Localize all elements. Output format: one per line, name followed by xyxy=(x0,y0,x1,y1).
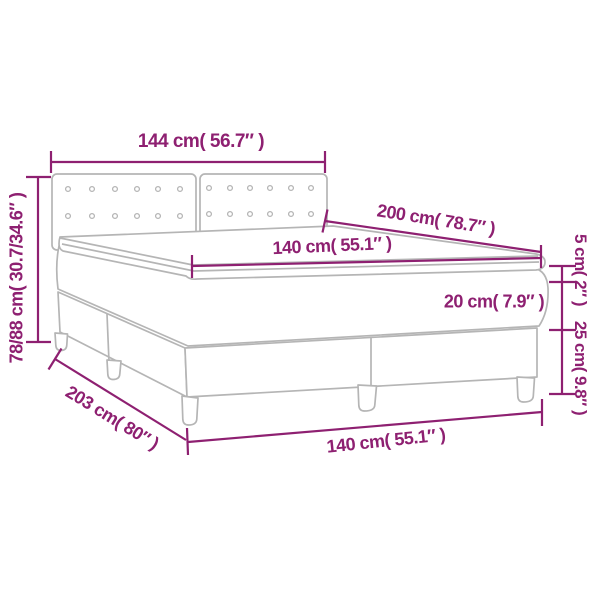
dim-height-range-line xyxy=(26,177,51,342)
bed-leg xyxy=(107,360,121,380)
dim-label-mattress-height: 20 cm( 7.9″ ) xyxy=(444,292,544,313)
dim-label-base-height: 25 cm( 9.8″ ) xyxy=(570,321,590,415)
dim-headboard-width-line xyxy=(51,151,325,173)
dim-label-topper-height: 5 cm( 2″ ) xyxy=(570,234,590,306)
bed-leg xyxy=(517,377,535,402)
bed-leg xyxy=(182,396,198,425)
product-dimension-diagram: 144 cm( 56.7″ ) 78/88 cm( 30.7/34.6″ ) 2… xyxy=(0,0,600,600)
dim-label-headboard-width: 144 cm( 56.7″ ) xyxy=(138,131,264,153)
bed-leg xyxy=(358,385,377,411)
dim-label-height-range: 78/88 cm( 30.7/34.6″ ) xyxy=(7,193,28,364)
bed-leg xyxy=(55,333,68,351)
